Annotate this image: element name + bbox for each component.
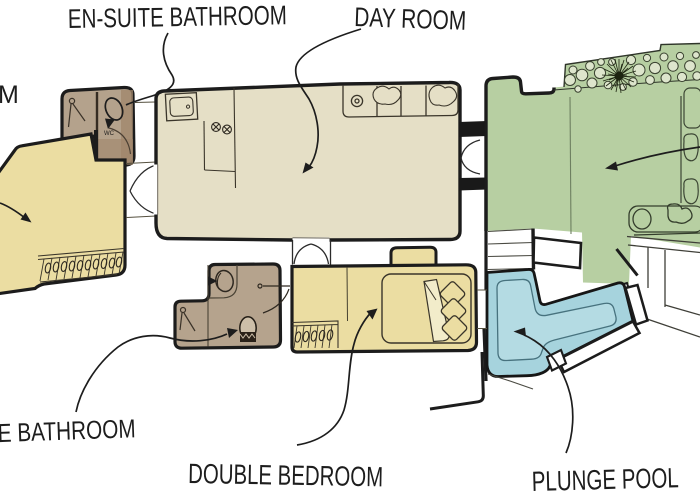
svg-text:PLUNGE POOL: PLUNGE POOL	[531, 462, 679, 497]
svg-text:M: M	[0, 81, 19, 109]
svg-text:E BATHROOM: E BATHROOM	[0, 413, 136, 448]
svg-text:DOUBLE BEDROOM: DOUBLE BEDROOM	[188, 458, 384, 492]
svg-text:WC: WC	[104, 131, 115, 137]
svg-text:EN-SUITE BATHROOM: EN-SUITE BATHROOM	[68, 0, 287, 34]
svg-text:DAY ROOM: DAY ROOM	[354, 2, 467, 36]
